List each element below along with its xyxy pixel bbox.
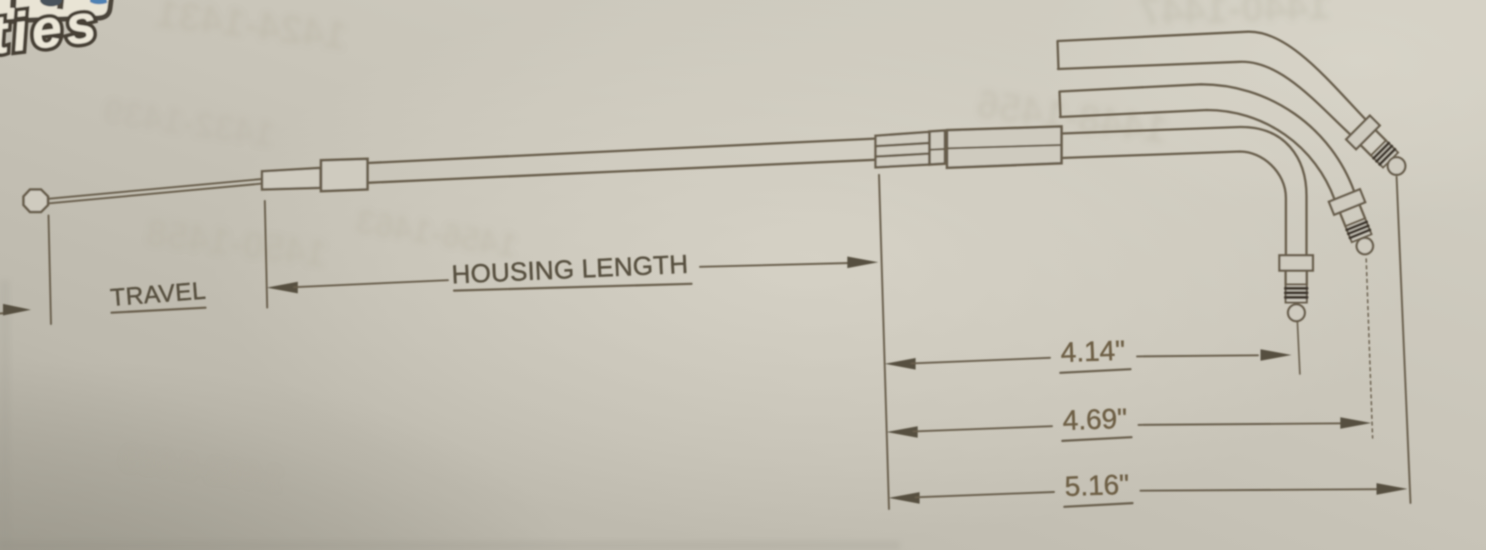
svg-text:5.16": 5.16" xyxy=(1064,469,1129,502)
svg-text:4.69": 4.69" xyxy=(1062,403,1127,436)
svg-text:4.14": 4.14" xyxy=(1060,335,1125,368)
